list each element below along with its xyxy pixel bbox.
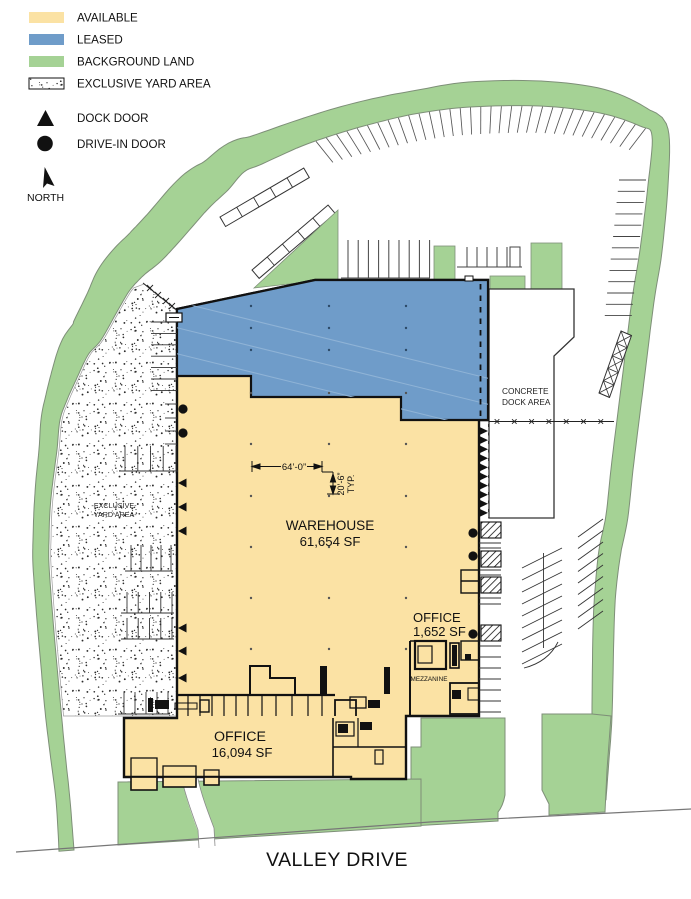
svg-text:DRIVE-IN DOOR: DRIVE-IN DOOR [77,138,166,151]
svg-text:EXCLUSIVE YARD AREA: EXCLUSIVE YARD AREA [77,78,211,91]
svg-text:LEASED: LEASED [77,34,123,47]
svg-text:-YARD AREA-: -YARD AREA- [91,510,137,519]
svg-text:OFFICE: OFFICE [214,729,266,745]
svg-text:CONCRETE: CONCRETE [502,386,549,396]
svg-text:20’-6”: 20’-6” [336,472,346,495]
svg-text:64’-0”: 64’-0” [282,462,306,473]
svg-text:AVAILABLE: AVAILABLE [77,12,138,25]
svg-text:OFFICE: OFFICE [413,610,461,625]
svg-text:-EXCLUSIVE-: -EXCLUSIVE- [91,501,137,510]
svg-text:WAREHOUSE: WAREHOUSE [286,518,375,533]
svg-text:16,094 SF: 16,094 SF [212,745,273,760]
svg-text:NORTH: NORTH [27,192,64,204]
svg-text:BACKGROUND LAND: BACKGROUND LAND [77,56,194,69]
svg-text:DOCK AREA: DOCK AREA [502,397,551,407]
svg-text:61,654 SF: 61,654 SF [300,534,361,549]
svg-text:MEZZANINE: MEZZANINE [411,676,448,683]
svg-text:1,652 SF: 1,652 SF [413,624,466,639]
svg-text:TYP.: TYP. [346,475,356,494]
svg-text:VALLEY DRIVE: VALLEY DRIVE [266,849,408,871]
svg-text:DOCK DOOR: DOCK DOOR [77,112,149,125]
